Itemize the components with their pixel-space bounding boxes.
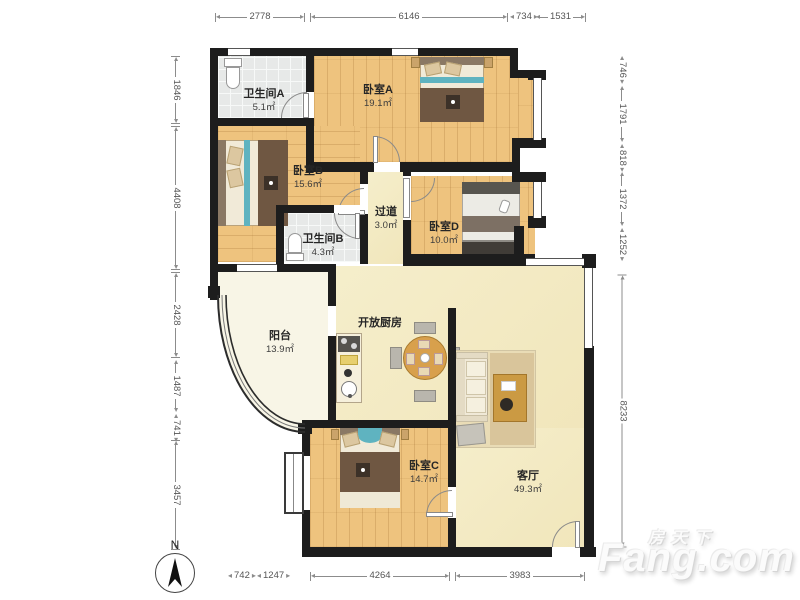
room-label-hallway: 过道 3.0㎡ xyxy=(365,206,407,232)
dim-value: 2428 xyxy=(169,302,183,327)
bay-window-line xyxy=(293,454,294,512)
wall-opening-balcony xyxy=(328,306,336,336)
nightstand xyxy=(411,57,420,68)
watermark-logo: Fang.com xyxy=(598,536,795,581)
window-living-top xyxy=(526,258,584,266)
entry-door-gap xyxy=(552,547,580,557)
dim-right-1: ◂746▸ xyxy=(615,56,629,84)
dining-chair xyxy=(414,390,436,402)
wall-balcony-kitchen xyxy=(328,336,336,424)
dim-value: 3457 xyxy=(169,482,183,507)
sofa-cushion xyxy=(466,379,486,395)
wall-bedroom-d-bottom xyxy=(403,254,535,266)
dim-top-2: ◂6146▸ xyxy=(310,10,508,24)
cutting-board xyxy=(340,355,358,365)
dim-left-3: ◂2428▸ xyxy=(169,272,183,358)
room-name: 客厅 xyxy=(488,470,568,483)
dim-value: 1372 xyxy=(615,186,629,211)
window-corner-block xyxy=(582,254,596,268)
door-leaf xyxy=(373,136,378,163)
wall-niche-bottom xyxy=(512,172,546,182)
bay-window xyxy=(284,452,304,514)
dim-left-2: ◂4408▸ xyxy=(169,126,183,270)
dining-plate xyxy=(434,353,443,365)
bed-c-footboard xyxy=(340,492,400,508)
dim-right-4: ◂1372▸ xyxy=(615,172,629,226)
stove-burner xyxy=(341,338,347,344)
room-area: 14.7㎡ xyxy=(384,473,464,486)
dim-bottom-2: ◂1247▸ xyxy=(257,569,297,583)
room-label-bedroom-b: 卧室B 15.6㎡ xyxy=(268,165,348,191)
dim-value: 1487 xyxy=(169,373,183,398)
room-name: 卧室D xyxy=(404,221,484,234)
room-name: 阳台 xyxy=(240,330,320,343)
north-label: N xyxy=(150,538,200,552)
room-label-living: 客厅 49.3㎡ xyxy=(488,470,568,496)
dim-value: 4408 xyxy=(169,185,183,210)
room-label-bathroom-a: 卫生间A 5.1㎡ xyxy=(224,88,304,114)
dim-value: 1846 xyxy=(169,77,183,102)
door-gap xyxy=(374,162,400,172)
room-area: 3.0㎡ xyxy=(365,219,407,232)
dim-value: 818 xyxy=(615,148,629,168)
sofa-armrest xyxy=(456,415,488,422)
dim-value: 1531 xyxy=(548,10,573,24)
toilet-icon xyxy=(224,58,242,67)
wall-left xyxy=(210,48,218,300)
stove-burner xyxy=(351,343,357,349)
toilet-bowl-icon xyxy=(226,67,240,89)
dining-chair xyxy=(390,347,402,369)
dim-bottom-1: ◂742▸ xyxy=(228,569,256,583)
window xyxy=(228,48,250,56)
entry-door-leaf xyxy=(575,521,580,548)
window-bedroom-d xyxy=(533,182,542,218)
wall-bathroom-a-bottom xyxy=(210,118,314,126)
door-leaf xyxy=(426,512,453,517)
dim-bottom-3: ◂4264▸ xyxy=(310,569,450,583)
room-area: 19.1㎡ xyxy=(338,97,418,110)
dim-top-3: ◂734▸ xyxy=(510,10,534,24)
dim-left-6: ◂3457▸ xyxy=(169,440,183,550)
dining-plate xyxy=(406,353,415,365)
dim-value: 8233 xyxy=(616,398,630,423)
nightstand xyxy=(331,429,339,440)
coffee-table-card xyxy=(501,381,516,391)
room-area: 13.9㎡ xyxy=(240,343,320,356)
room-name: 卧室C xyxy=(384,460,464,473)
dim-value: 741 xyxy=(169,418,183,438)
room-label-kitchen: 开放厨房 xyxy=(340,317,420,330)
wall-right xyxy=(584,346,594,557)
dining-centerpiece xyxy=(420,353,430,363)
dim-right-6: ◂8233▸ xyxy=(616,275,630,548)
bed-a-runner xyxy=(420,77,484,83)
room-area: 49.3㎡ xyxy=(488,483,568,496)
bed-b-headboard xyxy=(218,140,226,226)
coffee-table-kettle xyxy=(500,398,513,411)
dim-value: 1791 xyxy=(615,101,629,126)
dim-right-2: ◂1791▸ xyxy=(615,86,629,142)
sofa-cushion xyxy=(466,361,486,377)
dim-value: 742 xyxy=(232,569,252,583)
dim-value: 6146 xyxy=(396,10,421,24)
room-name: 开放厨房 xyxy=(340,317,420,330)
fang-watermark: 房天下 Fang.com xyxy=(596,520,796,590)
room-label-bedroom-d: 卧室D 10.0㎡ xyxy=(404,221,484,247)
dim-left-1: ◂1846▸ xyxy=(169,56,183,124)
dim-right-3: ◂818▸ xyxy=(615,144,629,170)
dim-value: 2778 xyxy=(247,10,272,24)
dim-value: 3983 xyxy=(507,569,532,583)
floorplan-canvas: 卫生间A 5.1㎡ 卧室A 19.1㎡ 卧室B 15.6㎡ 过道 3.0㎡ 卧室… xyxy=(0,0,800,600)
dim-left-5: ◂741▸ xyxy=(169,414,183,438)
room-label-bathroom-b: 卫生间B 4.3㎡ xyxy=(283,233,363,259)
room-area: 5.1㎡ xyxy=(224,101,304,114)
room-area: 10.0㎡ xyxy=(404,234,484,247)
dining-plate xyxy=(418,340,430,349)
bed-a-cushion-dot xyxy=(451,100,455,104)
bed-b-runner xyxy=(244,140,250,226)
compass: N xyxy=(150,538,200,598)
wall-bathroom-a-right xyxy=(306,48,314,92)
dining-plate xyxy=(418,367,430,376)
window-living-right xyxy=(584,268,593,348)
room-name: 卫生间A xyxy=(224,88,304,101)
dim-left-4: ◂1487▸ xyxy=(169,360,183,412)
dim-right-5: ◂1252▸ xyxy=(615,228,629,272)
room-label-balcony: 阳台 13.9㎡ xyxy=(240,330,320,356)
door-gap xyxy=(334,205,360,213)
sofa-cushion xyxy=(466,397,486,413)
window xyxy=(392,48,418,56)
room-name: 卧室A xyxy=(338,84,418,97)
dim-value: 734 xyxy=(514,10,534,24)
nightstand xyxy=(484,57,493,68)
dim-value: 1252 xyxy=(615,232,629,257)
faucet-icon xyxy=(348,394,352,398)
bed-d-headboard xyxy=(462,182,520,194)
room-name: 卫生间B xyxy=(283,233,363,246)
bed-c-cushion-dot xyxy=(361,468,365,472)
dim-value: 746 xyxy=(615,60,629,80)
room-name: 卧室B xyxy=(268,165,348,178)
nightstand xyxy=(401,429,409,440)
room-label-bedroom-a: 卧室A 19.1㎡ xyxy=(338,84,418,110)
dim-value: 1247 xyxy=(261,569,286,583)
dim-top-4: ◂1531▸ xyxy=(536,10,586,24)
window-bedroom-a xyxy=(533,78,542,140)
dim-top-1: ◂2778▸ xyxy=(215,10,305,24)
wall-top xyxy=(210,48,518,56)
armchair xyxy=(456,423,486,447)
room-name: 过道 xyxy=(365,206,407,219)
dim-value: 4264 xyxy=(367,569,392,583)
room-area: 15.6㎡ xyxy=(268,178,348,191)
balcony-window-arc xyxy=(196,270,326,445)
room-area: 4.3㎡ xyxy=(283,246,363,259)
kitchen-appliance xyxy=(344,369,352,377)
dim-bottom-4: ◂3983▸ xyxy=(455,569,585,583)
north-arrow-icon xyxy=(155,553,195,593)
sofa-armrest xyxy=(456,352,488,359)
sofa-back xyxy=(456,352,465,422)
room-label-bedroom-c: 卧室C 14.7㎡ xyxy=(384,460,464,486)
